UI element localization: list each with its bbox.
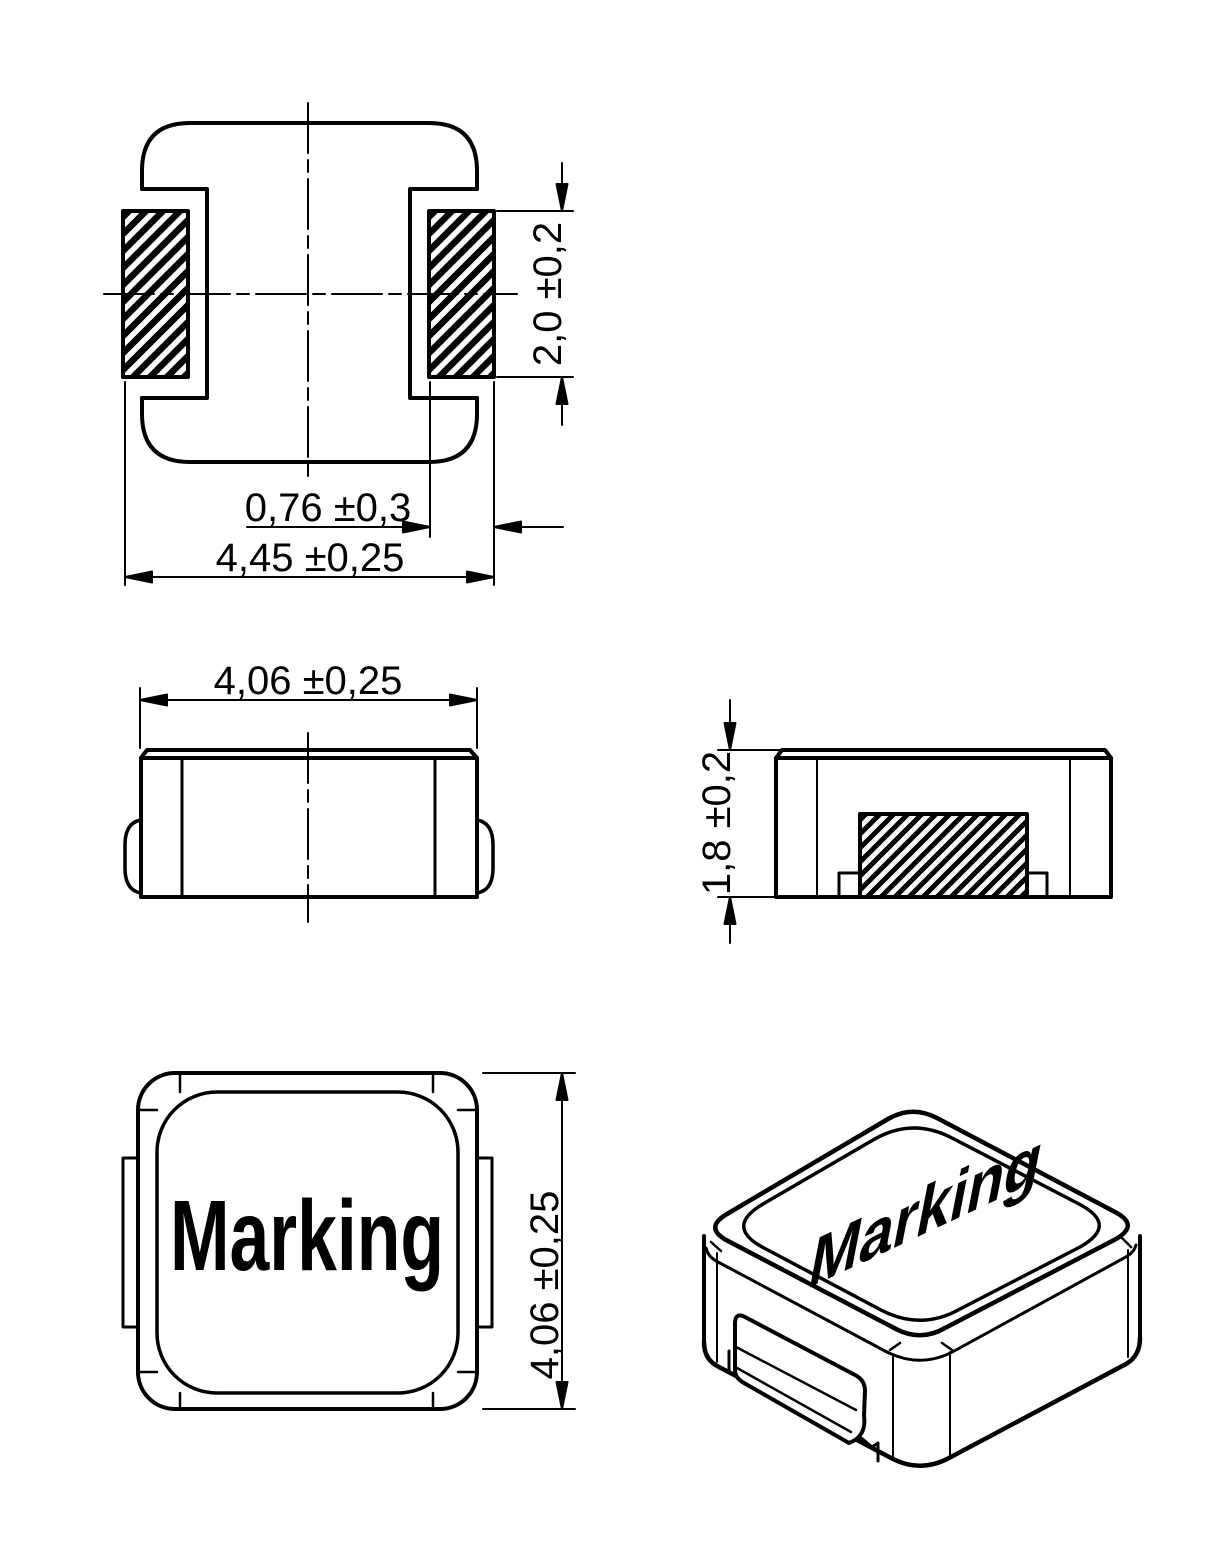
side-view xyxy=(718,700,1111,943)
terminal-bump-left xyxy=(125,820,141,893)
arrowhead xyxy=(467,572,494,583)
marking-label-flat: Marking xyxy=(170,1180,444,1292)
body-outline-upper xyxy=(142,123,477,189)
dim-pad-length-label: 2,0 ±0,2 xyxy=(526,222,570,366)
dim-overall-width-label: 4,45 ±0,25 xyxy=(216,536,405,580)
dim-body-height-label: 1,8 ±0,2 xyxy=(695,751,739,895)
front-view xyxy=(125,688,493,922)
arrowhead xyxy=(450,695,477,706)
body-outline-lower xyxy=(142,398,477,462)
winding-cross-section xyxy=(860,814,1027,897)
iso-view xyxy=(704,1112,1140,1466)
extension-lines xyxy=(430,382,494,585)
component-drawing: 2,0 ±0,2 0,76 ±0,3 4,45 ±0,25 4,06 ±0,25 xyxy=(0,0,1229,1558)
arrowhead xyxy=(557,184,568,211)
arrowhead xyxy=(725,897,736,924)
arrowhead xyxy=(140,695,167,706)
terminal-tab-right xyxy=(477,1158,492,1327)
arrowhead xyxy=(557,1073,568,1100)
drawing-sheet: 2,0 ±0,2 0,76 ±0,3 4,45 ±0,25 4,06 ±0,25 xyxy=(0,0,1229,1558)
arrowhead xyxy=(125,572,152,583)
dim-pad-width-label: 0,76 ±0,3 xyxy=(245,486,412,530)
terminal-bump-right xyxy=(477,820,493,893)
terminal-tab-left xyxy=(123,1158,138,1327)
arrowhead xyxy=(494,522,521,533)
arrowhead xyxy=(557,377,568,404)
arrowhead xyxy=(557,1382,568,1409)
dim-body-width-label: 4,06 ±0,25 xyxy=(214,659,403,703)
arrowhead xyxy=(725,723,736,750)
dim-body-length-label: 4,06 ±0,25 xyxy=(523,1191,567,1380)
